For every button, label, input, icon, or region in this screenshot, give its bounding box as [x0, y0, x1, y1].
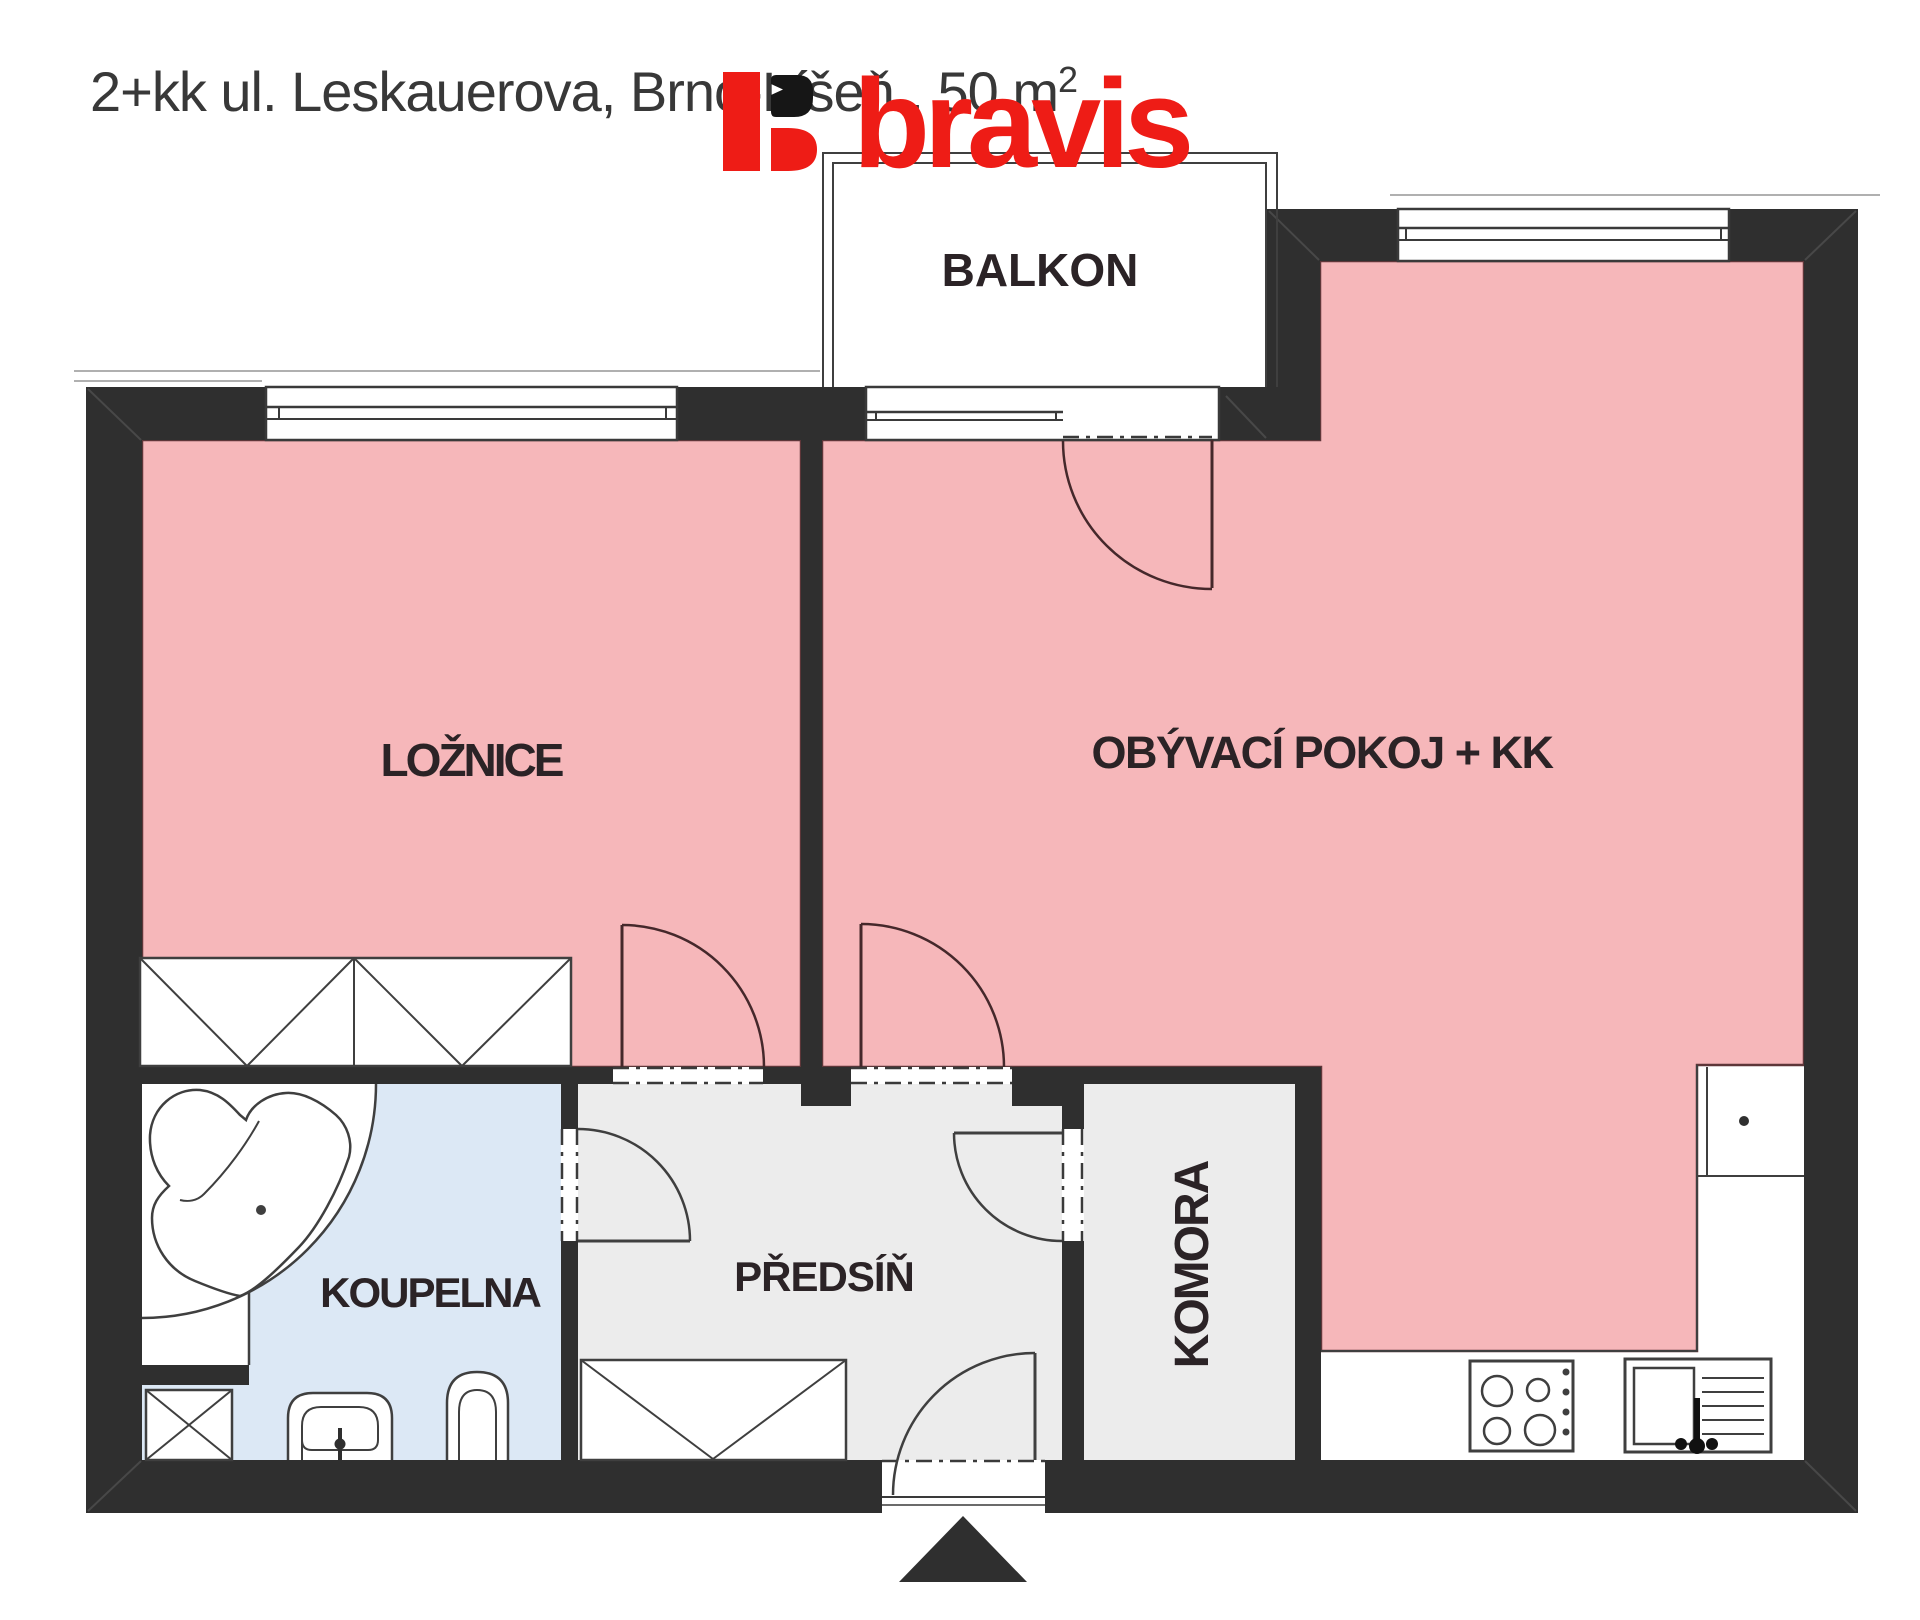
svg-text:LOŽNICE: LOŽNICE [381, 734, 563, 786]
svg-text:KOMORA: KOMORA [1166, 1160, 1219, 1368]
svg-text:OBÝVACÍ POKOJ + KK: OBÝVACÍ POKOJ + KK [1091, 727, 1554, 778]
svg-text:BALKON: BALKON [942, 244, 1139, 296]
svg-text:PŘEDSÍŇ: PŘEDSÍŇ [734, 1252, 914, 1300]
svg-text:bravis: bravis [853, 53, 1189, 194]
svg-text:KOUPELNA: KOUPELNA [320, 1269, 541, 1316]
